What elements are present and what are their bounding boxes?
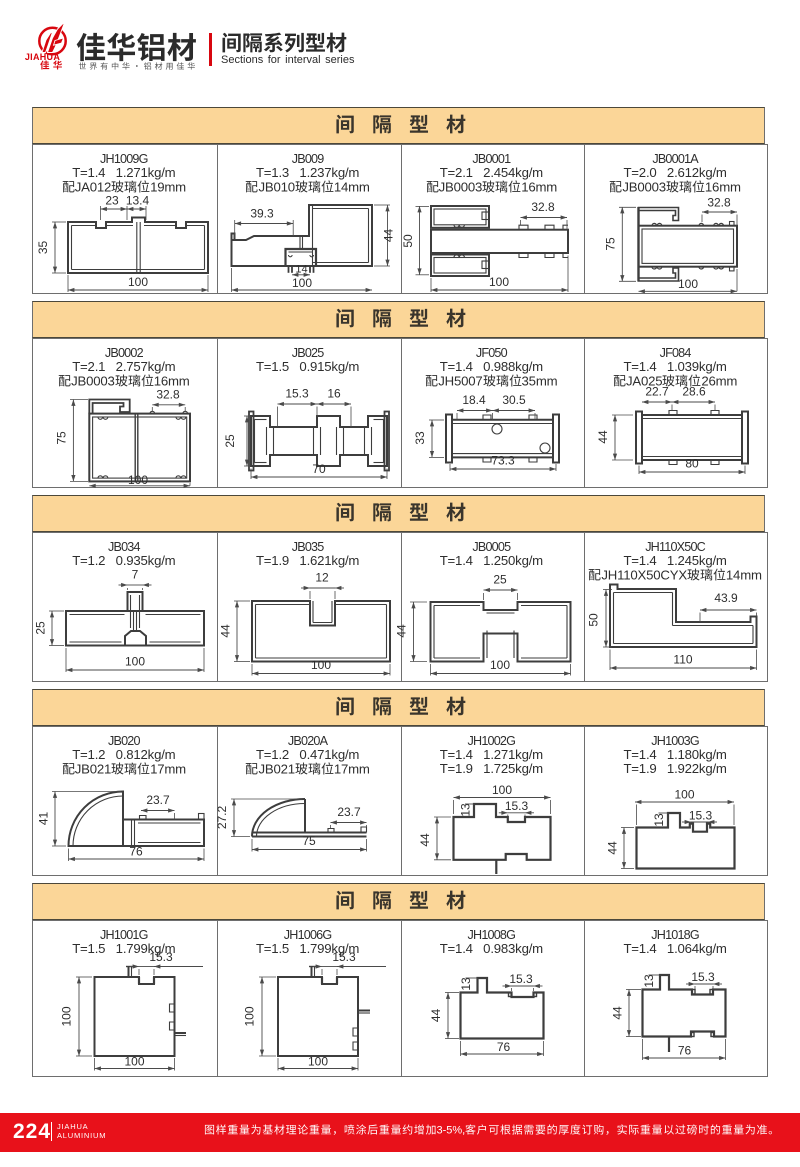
svg-text:44: 44 <box>219 624 233 638</box>
svg-text:28.6: 28.6 <box>682 385 706 399</box>
svg-text:100: 100 <box>492 783 512 797</box>
svg-text:15.3: 15.3 <box>689 809 713 823</box>
svg-text:23.7: 23.7 <box>337 805 361 819</box>
svg-text:75: 75 <box>302 834 316 848</box>
svg-text:75: 75 <box>603 237 617 251</box>
svg-text:100: 100 <box>308 1055 328 1069</box>
svg-text:44: 44 <box>395 624 409 638</box>
svg-text:13: 13 <box>459 803 473 817</box>
svg-text:50: 50 <box>401 234 415 248</box>
svg-text:16: 16 <box>327 387 341 401</box>
svg-text:100: 100 <box>678 277 698 291</box>
svg-text:15.3: 15.3 <box>149 950 173 964</box>
svg-text:32.8: 32.8 <box>156 387 180 401</box>
svg-text:39.3: 39.3 <box>250 207 274 221</box>
svg-text:100: 100 <box>490 658 510 672</box>
svg-text:100: 100 <box>311 658 331 672</box>
svg-text:25: 25 <box>223 434 237 448</box>
svg-text:15.3: 15.3 <box>285 387 309 401</box>
svg-text:44: 44 <box>611 1006 625 1020</box>
svg-text:30.5: 30.5 <box>502 393 526 407</box>
svg-text:44: 44 <box>418 833 432 847</box>
svg-text:15.3: 15.3 <box>691 970 715 984</box>
svg-text:13: 13 <box>652 813 666 827</box>
svg-text:44: 44 <box>606 841 620 855</box>
svg-text:110: 110 <box>673 653 692 667</box>
svg-text:43.9: 43.9 <box>714 591 738 605</box>
svg-text:100: 100 <box>674 788 694 802</box>
svg-text:75: 75 <box>55 431 69 445</box>
svg-text:100: 100 <box>128 275 148 289</box>
svg-text:76: 76 <box>129 845 143 859</box>
svg-text:23: 23 <box>105 194 119 208</box>
svg-text:13: 13 <box>642 974 656 988</box>
svg-text:76: 76 <box>497 1040 511 1054</box>
svg-text:44: 44 <box>429 1009 443 1023</box>
svg-text:50: 50 <box>587 613 601 627</box>
svg-text:100: 100 <box>128 473 148 487</box>
svg-text:76: 76 <box>678 1044 692 1058</box>
svg-text:15.3: 15.3 <box>509 972 533 986</box>
svg-text:70: 70 <box>312 462 326 476</box>
svg-text:41: 41 <box>37 812 51 826</box>
svg-text:18.4: 18.4 <box>462 393 486 407</box>
svg-text:23.7: 23.7 <box>146 793 170 807</box>
svg-text:33: 33 <box>413 431 427 445</box>
svg-text:13.4: 13.4 <box>126 194 150 208</box>
svg-text:35: 35 <box>36 241 50 255</box>
svg-text:100: 100 <box>243 1006 257 1026</box>
svg-text:44: 44 <box>596 430 610 444</box>
svg-text:13: 13 <box>459 977 473 991</box>
svg-text:12: 12 <box>315 571 329 585</box>
svg-text:44: 44 <box>382 229 396 243</box>
svg-text:27.2: 27.2 <box>215 805 229 829</box>
svg-text:15.3: 15.3 <box>505 799 529 813</box>
svg-text:100: 100 <box>124 1055 144 1069</box>
svg-text:80: 80 <box>685 457 699 471</box>
svg-text:22.7: 22.7 <box>645 385 669 399</box>
svg-text:73.3: 73.3 <box>491 454 515 468</box>
svg-text:100: 100 <box>125 655 145 669</box>
svg-text:25: 25 <box>34 621 48 635</box>
svg-text:32.8: 32.8 <box>531 200 555 214</box>
svg-text:15.3: 15.3 <box>332 950 356 964</box>
svg-text:100: 100 <box>489 275 509 289</box>
svg-text:7: 7 <box>132 568 139 582</box>
svg-text:100: 100 <box>60 1006 74 1026</box>
svg-text:25: 25 <box>493 573 507 587</box>
svg-text:100: 100 <box>292 276 312 290</box>
svg-text:32.8: 32.8 <box>707 195 731 209</box>
